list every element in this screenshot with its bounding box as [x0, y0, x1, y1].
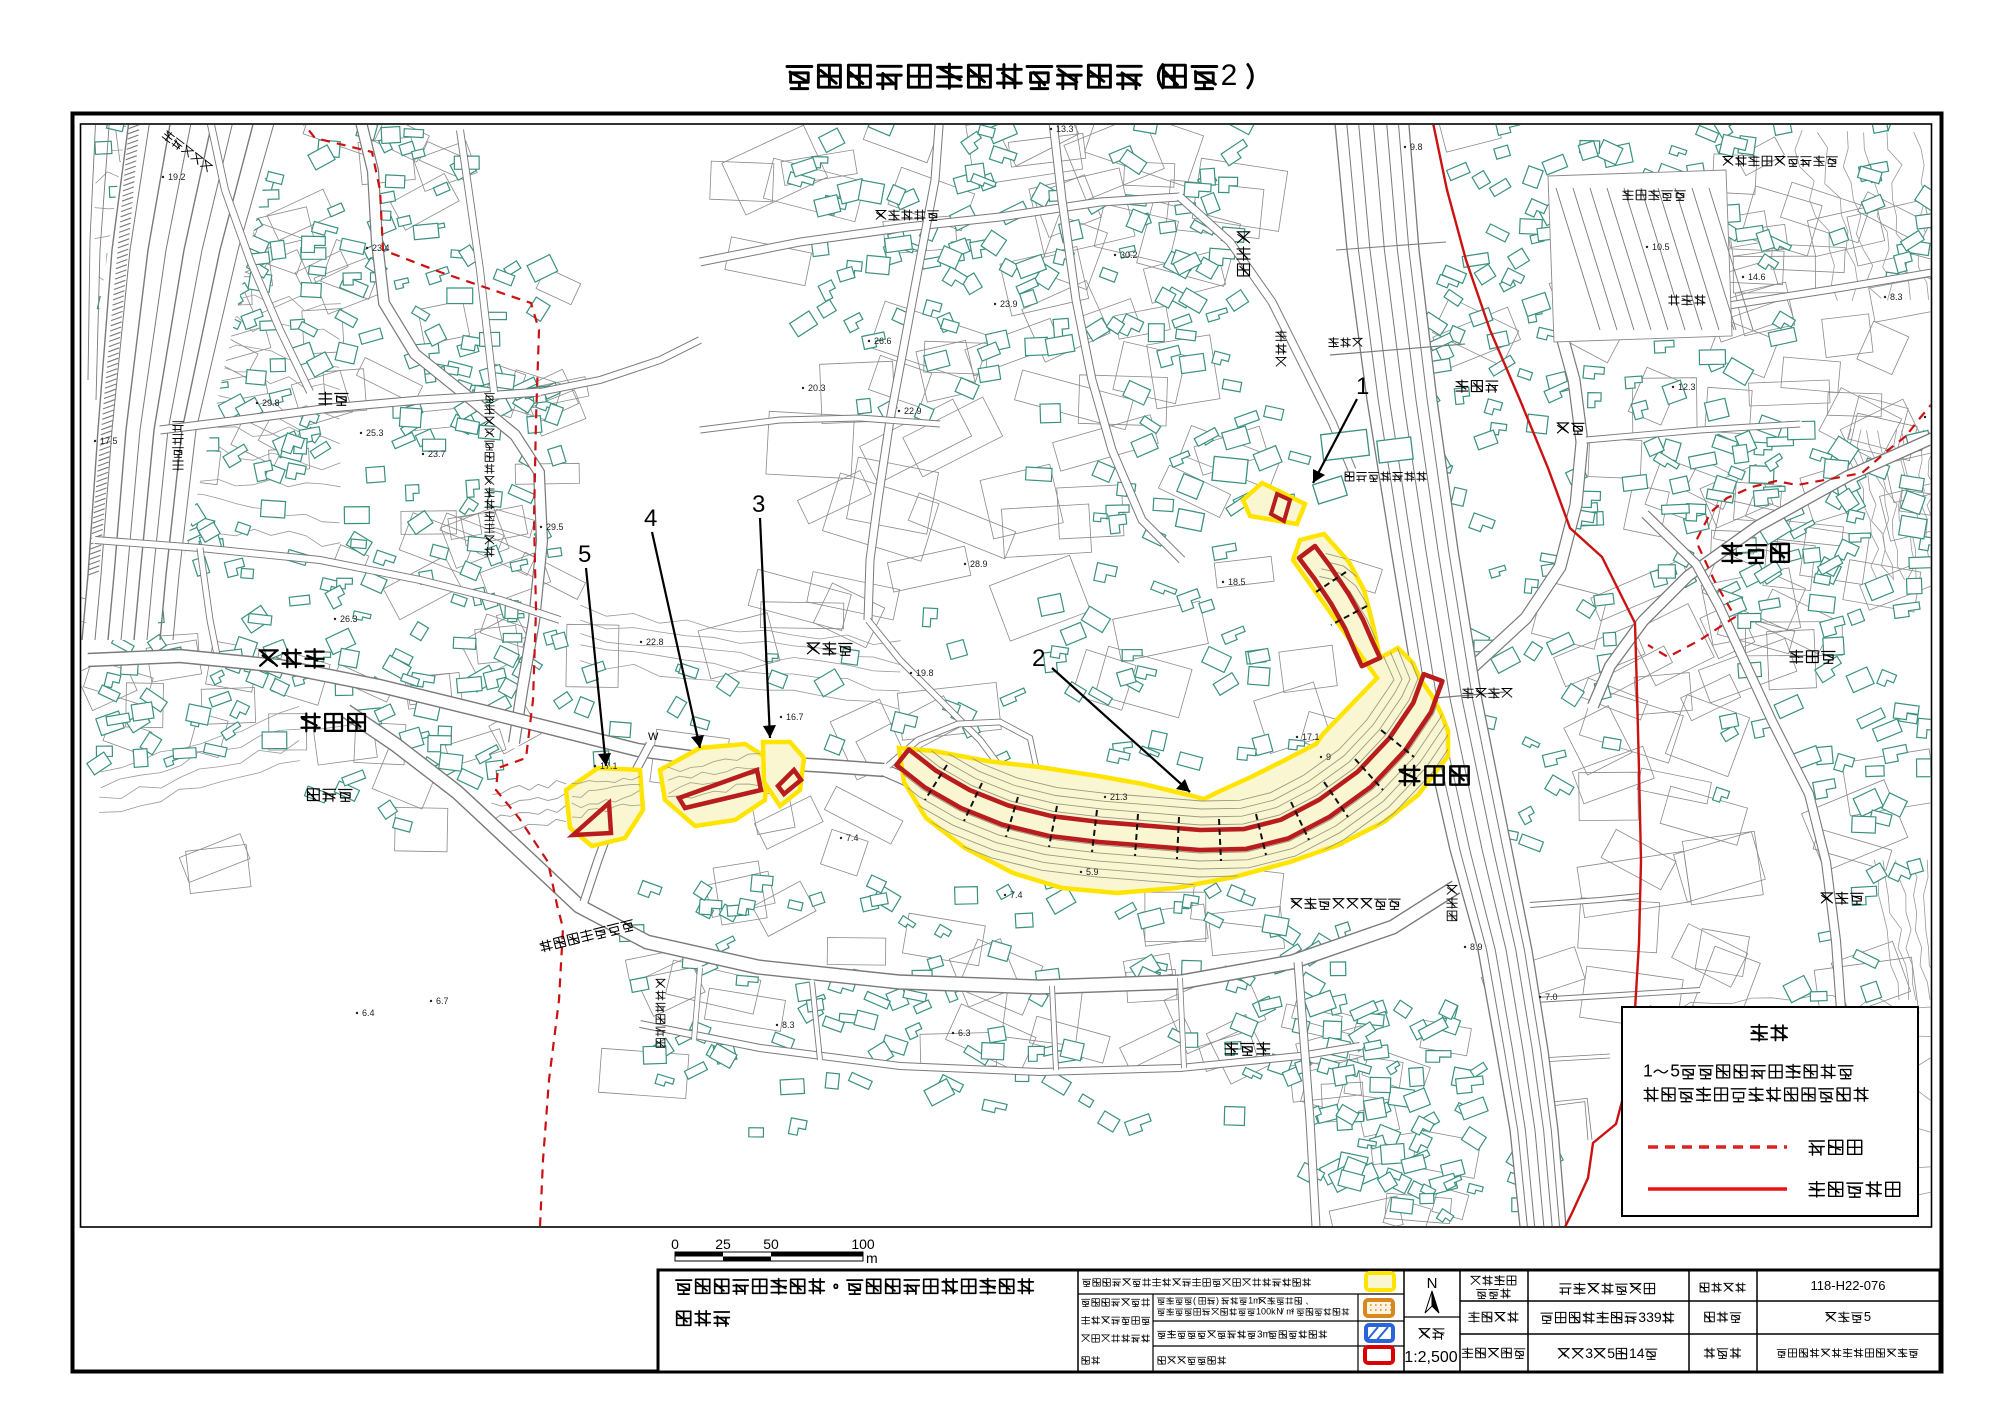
svg-text:7.0: 7.0	[1545, 992, 1558, 1002]
svg-text:23.4: 23.4	[372, 243, 390, 253]
svg-text:26.3: 26.3	[340, 614, 358, 624]
svg-text:26.6: 26.6	[874, 336, 892, 346]
svg-text:9: 9	[1654, 1309, 1662, 1325]
svg-text:²: ²	[1291, 1307, 1294, 1317]
svg-text:13.3: 13.3	[1056, 124, 1074, 134]
svg-text:4: 4	[1637, 1345, 1645, 1361]
svg-text:7.4: 7.4	[846, 833, 859, 843]
svg-text:9: 9	[1326, 752, 1331, 762]
svg-text:17.1: 17.1	[600, 761, 618, 771]
svg-text:1: 1	[1629, 1345, 1637, 1361]
svg-text:12.3: 12.3	[1678, 382, 1696, 392]
svg-text:m: m	[1253, 1296, 1261, 1306]
svg-text:5.9: 5.9	[1086, 867, 1099, 877]
svg-text:3: 3	[1638, 1309, 1646, 1325]
svg-text:m: m	[866, 1250, 878, 1266]
svg-text:29.5: 29.5	[546, 522, 564, 532]
svg-text:19.8: 19.8	[916, 668, 934, 678]
svg-text:22.9: 22.9	[904, 406, 922, 416]
svg-text:5: 5	[1670, 1061, 1680, 1081]
svg-text:1: 1	[1356, 373, 1369, 400]
svg-text:50: 50	[763, 1236, 779, 1252]
svg-text:28.9: 28.9	[970, 559, 988, 569]
svg-text:9.8: 9.8	[1410, 142, 1423, 152]
svg-text:2: 2	[1032, 645, 1045, 672]
svg-text:(: (	[1193, 1296, 1196, 1306]
svg-text:14.6: 14.6	[1748, 272, 1766, 282]
svg-text:6.4: 6.4	[362, 1008, 375, 1018]
svg-text:118-H22-076: 118-H22-076	[1811, 1278, 1886, 1293]
svg-text:1:2,500: 1:2,500	[1404, 1349, 1457, 1366]
svg-text:5: 5	[1864, 1309, 1871, 1324]
svg-text:30.2: 30.2	[1120, 250, 1138, 260]
svg-text:2: 2	[1221, 59, 1238, 92]
svg-text:18.5: 18.5	[1228, 577, 1246, 587]
svg-text:25.3: 25.3	[366, 428, 384, 438]
svg-text:10.5: 10.5	[1652, 242, 1670, 252]
svg-text:7.4: 7.4	[1010, 890, 1023, 900]
svg-text:20.3: 20.3	[808, 383, 826, 393]
svg-text:3: 3	[752, 491, 765, 518]
svg-text:8.9: 8.9	[1470, 942, 1483, 952]
svg-text:29.8: 29.8	[262, 398, 280, 408]
svg-text:25: 25	[715, 1236, 731, 1252]
svg-text:8.3: 8.3	[1890, 292, 1903, 302]
svg-text:21.3: 21.3	[1110, 792, 1128, 802]
svg-text:16.7: 16.7	[786, 712, 804, 722]
svg-text:23.9: 23.9	[1000, 299, 1018, 309]
svg-text:4: 4	[644, 505, 657, 532]
svg-text:6.3: 6.3	[958, 1028, 971, 1038]
svg-text:1: 1	[1643, 1061, 1653, 1081]
svg-text:N: N	[1427, 1275, 1438, 1292]
svg-text:22.8: 22.8	[646, 637, 664, 647]
svg-text:3: 3	[1646, 1309, 1654, 1325]
svg-text:5: 5	[578, 541, 591, 568]
svg-text:0: 0	[671, 1236, 679, 1252]
svg-text:3: 3	[1585, 1345, 1593, 1361]
svg-text:5: 5	[1607, 1345, 1615, 1361]
svg-text:W: W	[648, 731, 659, 743]
svg-text:): )	[1216, 1296, 1219, 1306]
svg-text:m: m	[1263, 1329, 1271, 1340]
svg-text:19.2: 19.2	[168, 172, 186, 182]
svg-text:17.5: 17.5	[100, 436, 118, 446]
svg-text:23.7: 23.7	[428, 449, 446, 459]
svg-text:8.3: 8.3	[782, 1020, 795, 1030]
svg-text:17.1: 17.1	[1302, 732, 1320, 742]
svg-text:6.7: 6.7	[436, 996, 449, 1006]
